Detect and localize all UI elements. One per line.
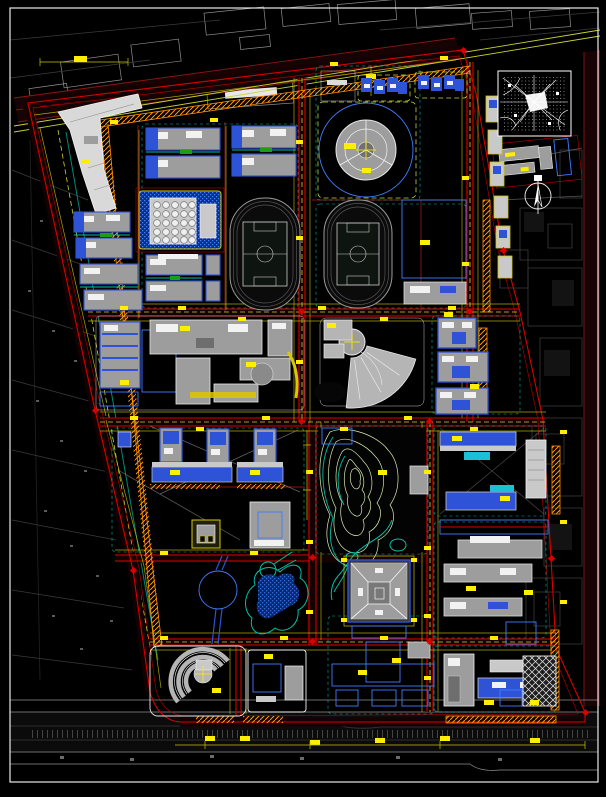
pyramid-roof-hall <box>341 556 417 626</box>
southwest-courtyard-building <box>250 502 290 548</box>
running-track-west <box>230 198 300 310</box>
lattice-roof-building <box>136 188 224 259</box>
gatehouse <box>192 520 220 548</box>
location-map-inset <box>498 71 571 136</box>
parking-structure <box>523 656 556 706</box>
running-track-east <box>324 200 392 308</box>
campus-master-plan <box>0 0 606 797</box>
cad-drawing-canvas[interactable] <box>0 0 606 797</box>
southeast-block <box>444 654 556 706</box>
